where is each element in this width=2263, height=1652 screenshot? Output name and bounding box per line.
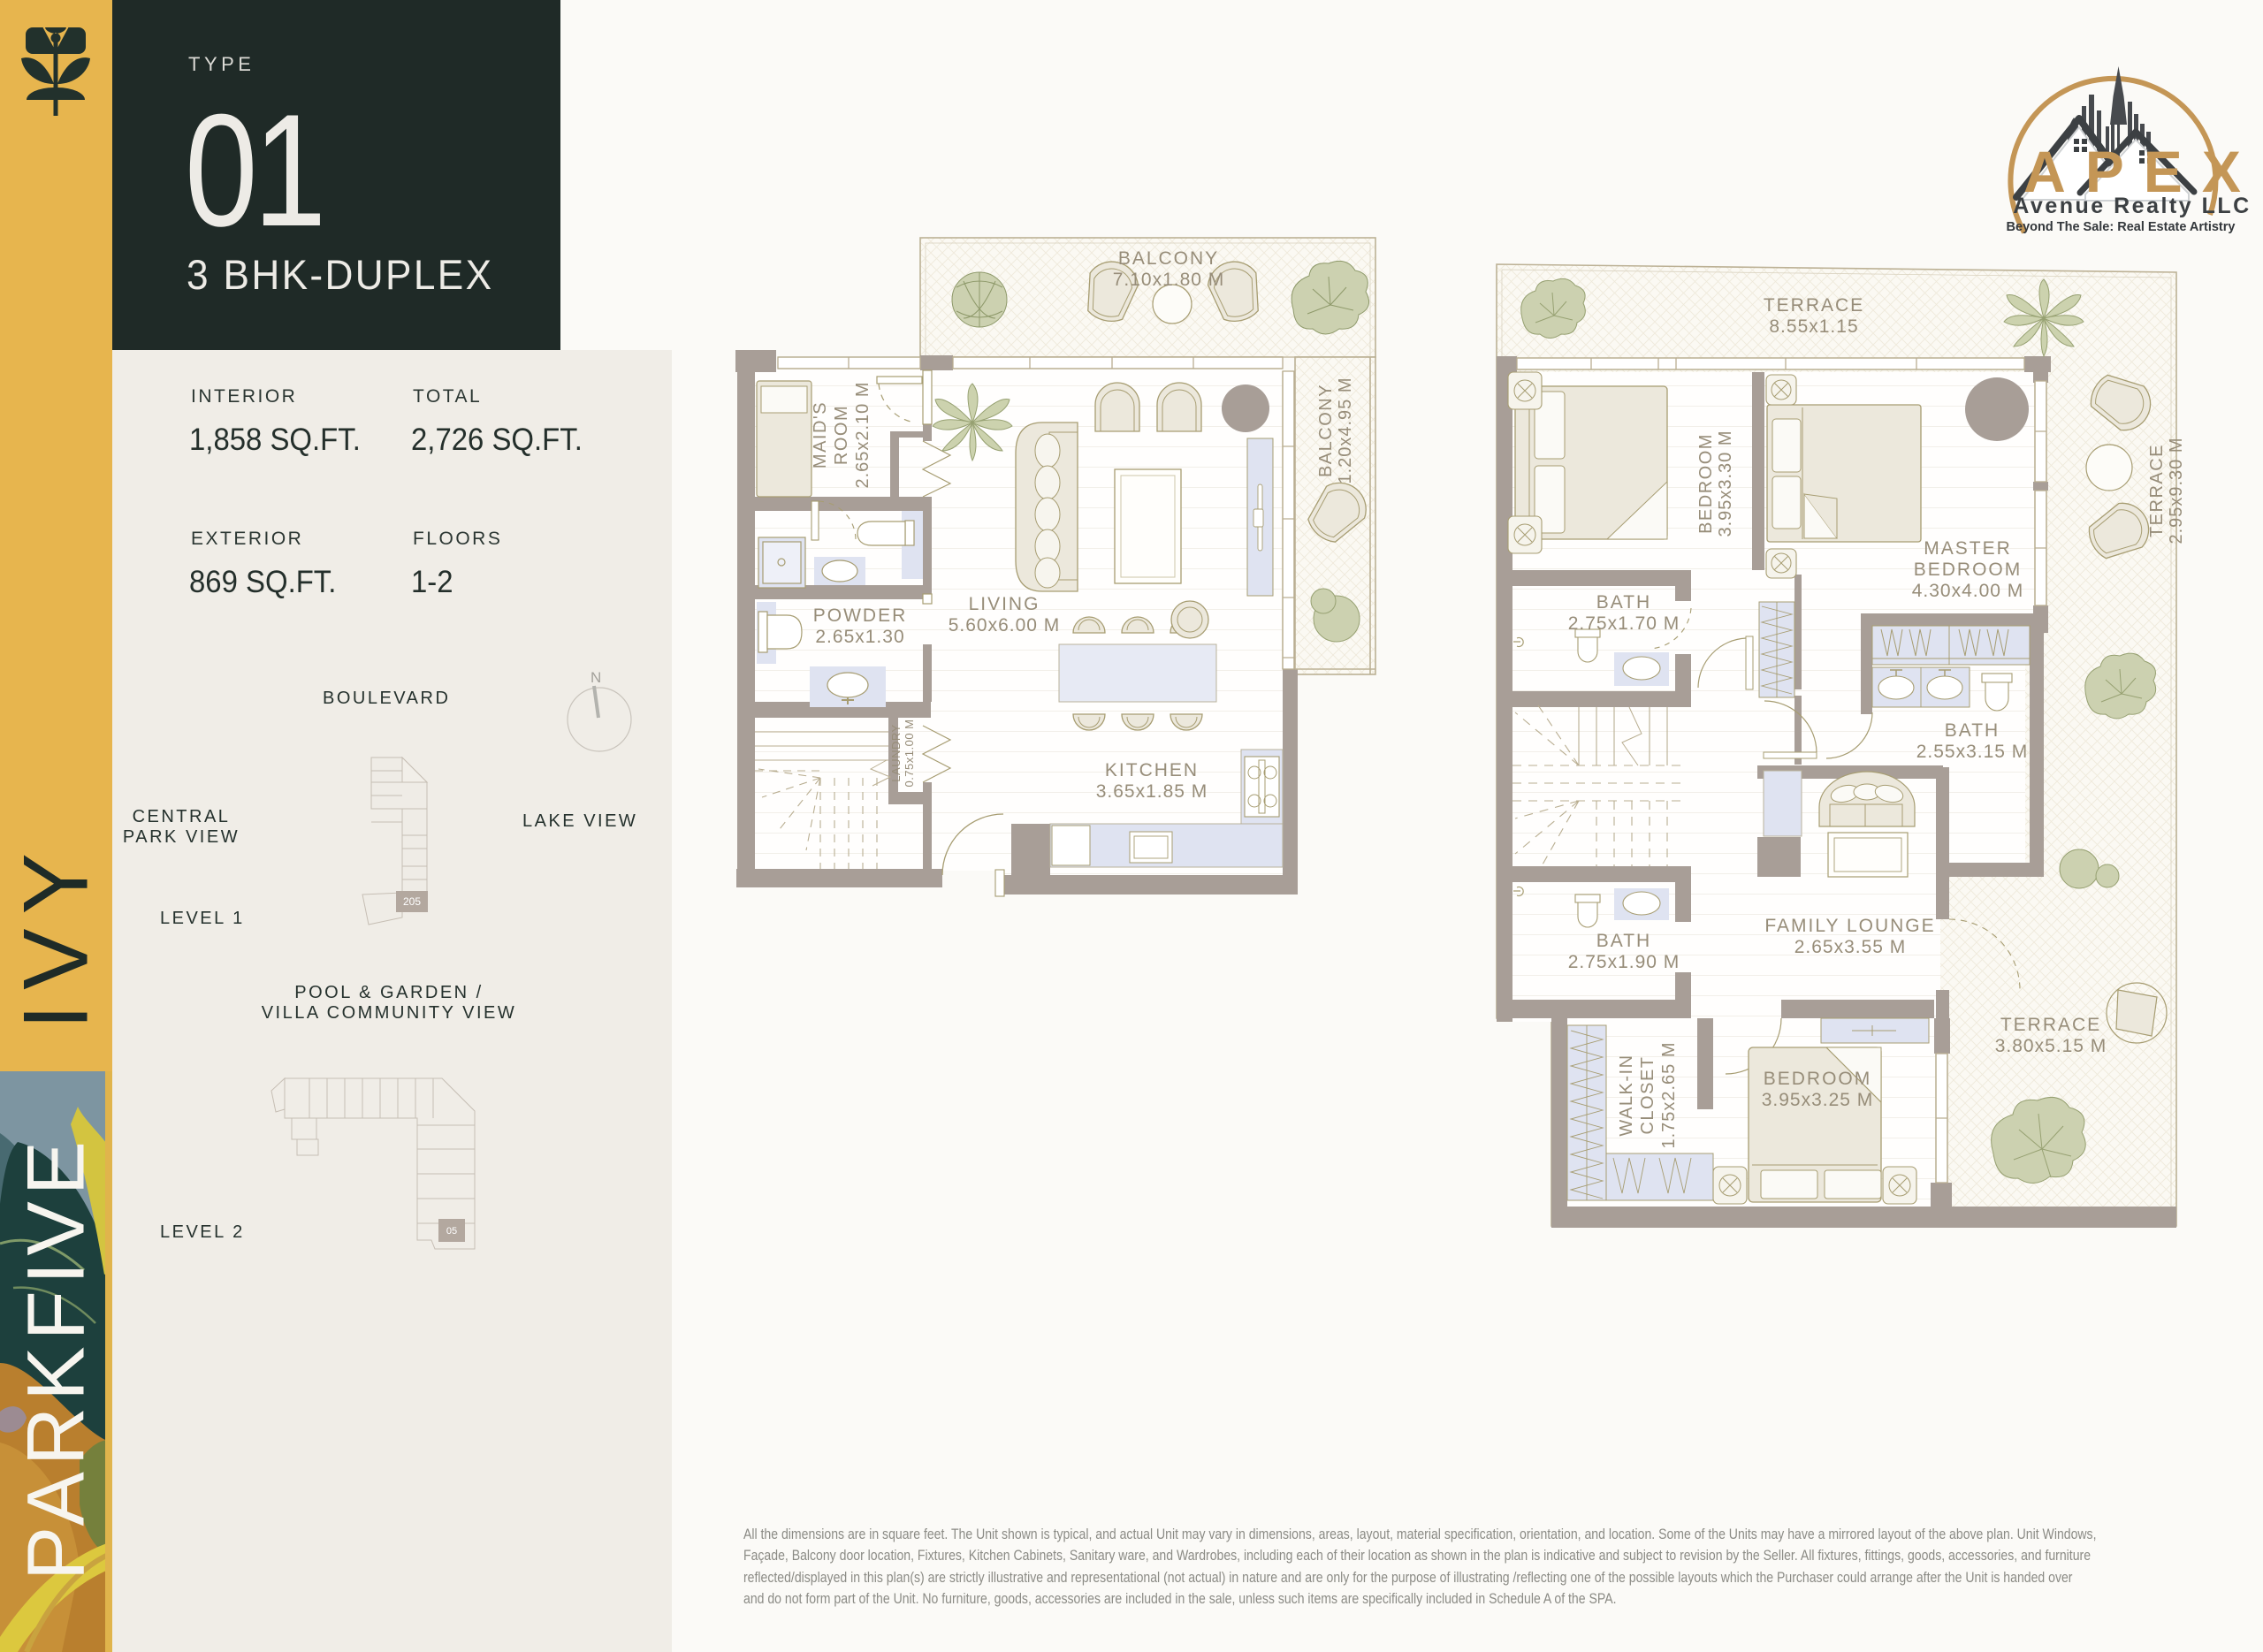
svg-text:2.95x9.30 M: 2.95x9.30 M	[2167, 437, 2186, 544]
svg-text:2.75x1.70 M: 2.75x1.70 M	[1568, 613, 1680, 634]
svg-text:CLOSET: CLOSET	[1638, 1055, 1657, 1134]
svg-text:1.75x2.65 M: 1.75x2.65 M	[1659, 1041, 1679, 1148]
svg-text:LIVING: LIVING	[969, 594, 1040, 614]
svg-text:KITCHEN: KITCHEN	[1105, 760, 1199, 780]
svg-text:3.95x3.30 M: 3.95x3.30 M	[1716, 430, 1735, 537]
svg-text:3.65x1.85 M: 3.65x1.85 M	[1096, 781, 1208, 802]
svg-text:8.55x1.15: 8.55x1.15	[1769, 316, 1858, 337]
svg-text:205: 205	[403, 895, 421, 908]
svg-text:4.30x4.00 M: 4.30x4.00 M	[1912, 581, 2024, 601]
svg-text:2.55x3.15 M: 2.55x3.15 M	[1916, 742, 2029, 762]
svg-text:5.60x6.00 M: 5.60x6.00 M	[949, 615, 1061, 636]
svg-text:BALCONY: BALCONY	[1118, 248, 1219, 269]
svg-text:0.75x1.00 M: 0.75x1.00 M	[903, 719, 916, 787]
svg-text:3.95x3.25 M: 3.95x3.25 M	[1762, 1090, 1874, 1110]
svg-text:2.75x1.90 M: 2.75x1.90 M	[1568, 952, 1680, 972]
svg-text:2.65x3.55 M: 2.65x3.55 M	[1794, 937, 1907, 957]
svg-text:TERRACE: TERRACE	[1764, 295, 1864, 316]
svg-text:ROOM: ROOM	[832, 405, 851, 465]
svg-text:BATH: BATH	[1596, 931, 1651, 951]
svg-text:2.65x2.10 M: 2.65x2.10 M	[853, 381, 872, 488]
svg-text:POWDER: POWDER	[813, 605, 908, 626]
svg-text:BATH: BATH	[1596, 592, 1651, 613]
svg-text:BALCONY: BALCONY	[1316, 384, 1336, 477]
svg-text:FAMILY LOUNGE: FAMILY LOUNGE	[1764, 916, 1935, 936]
svg-text:1.20x4.95 M: 1.20x4.95 M	[1336, 377, 1355, 483]
svg-text:Beyond The Sale: Real Estate A: Beyond The Sale: Real Estate Artistry	[2007, 220, 2236, 234]
svg-text:MAID'S: MAID'S	[811, 401, 830, 468]
svg-text:TERRACE: TERRACE	[2147, 444, 2167, 537]
svg-text:BEDROOM: BEDROOM	[1914, 560, 2023, 580]
svg-text:Avenue Realty LLC: Avenue Realty LLC	[2013, 194, 2251, 218]
svg-text:BATH: BATH	[1945, 720, 2000, 741]
svg-text:05: 05	[446, 1226, 457, 1237]
svg-text:MASTER: MASTER	[1924, 538, 2012, 559]
svg-text:BEDROOM: BEDROOM	[1696, 433, 1716, 534]
svg-text:2.65x1.30: 2.65x1.30	[815, 627, 904, 647]
svg-text:7.10x1.80 M: 7.10x1.80 M	[1113, 270, 1225, 290]
svg-text:BEDROOM: BEDROOM	[1764, 1069, 1872, 1089]
svg-text:TERRACE: TERRACE	[2000, 1015, 2101, 1035]
svg-text:LAUNDRY: LAUNDRY	[889, 724, 903, 781]
svg-text:3.80x5.15 M: 3.80x5.15 M	[1995, 1036, 2107, 1056]
svg-text:WALK-IN: WALK-IN	[1617, 1054, 1636, 1136]
svg-text:N: N	[591, 669, 601, 686]
